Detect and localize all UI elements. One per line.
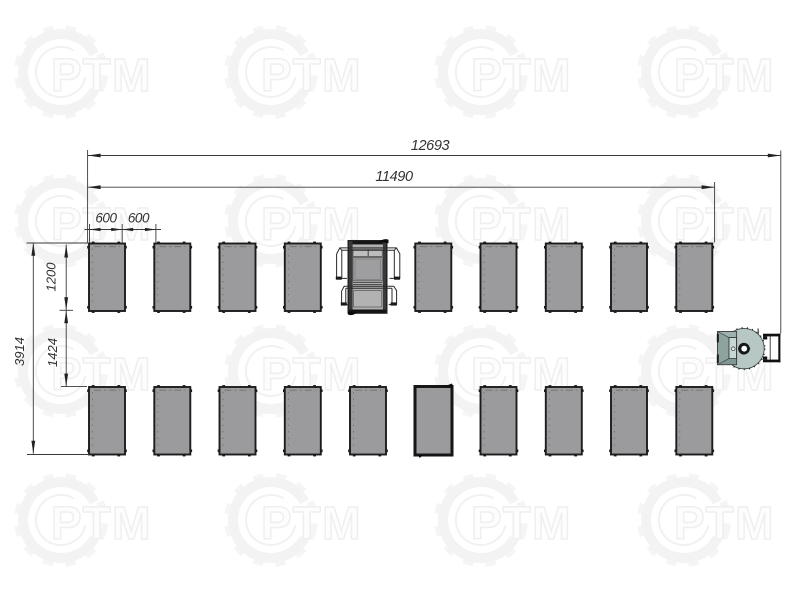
svg-text:1424: 1424 bbox=[45, 338, 60, 367]
svg-text:3914: 3914 bbox=[12, 337, 27, 366]
svg-text:600: 600 bbox=[128, 211, 150, 226]
svg-text:600: 600 bbox=[95, 211, 117, 226]
svg-text:1200: 1200 bbox=[44, 262, 59, 292]
svg-text:11490: 11490 bbox=[375, 169, 413, 185]
svg-text:12693: 12693 bbox=[411, 138, 450, 154]
